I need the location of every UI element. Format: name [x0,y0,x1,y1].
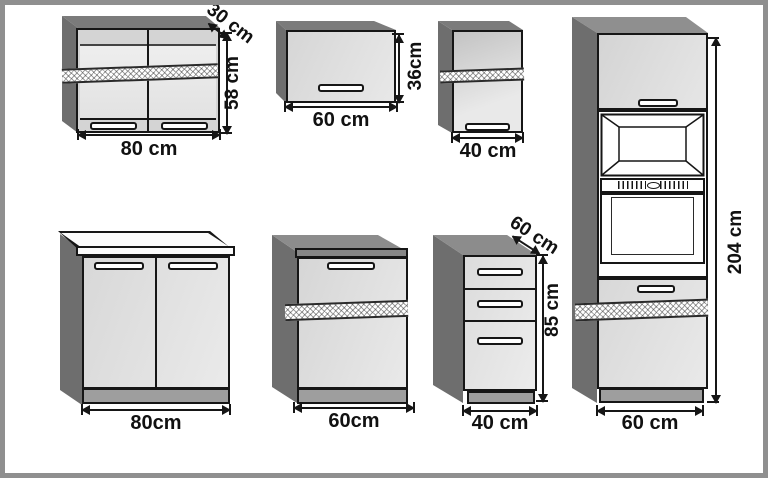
oven-control-panel [600,178,705,193]
drawer-handle [477,300,523,308]
vent-slots [660,181,688,189]
height-dimension-arrow [715,38,717,403]
cabinet-dimension-diagram: 80 cm 58 cm 30 cm 60 cm 36cm 40 cm [0,0,768,478]
width-dimension-label: 40 cm [442,140,534,163]
door-handle [90,122,137,130]
drawer-handle [477,337,523,345]
appliance-zone [597,110,708,278]
dimension-tick [392,33,404,35]
top-panel [438,21,523,30]
door-handle [94,262,144,270]
worktop-edge [76,246,235,256]
plinth [599,388,704,403]
door-handle [465,123,510,131]
side-panel [276,21,286,103]
door-divider [155,258,157,387]
drawer-divider [463,320,537,322]
drawer-divider [463,288,537,290]
top-panel [62,16,220,28]
oven-knob [647,182,660,189]
door-handle [637,285,675,293]
width-dimension-label: 80cm [82,412,230,435]
dimension-tick [220,132,232,134]
height-dimension-arrow [398,35,400,103]
width-dimension-label: 60 cm [285,109,397,132]
dimension-tick [536,400,548,402]
side-panel [433,235,463,403]
drawer-handle [477,268,523,276]
door-handle [161,122,208,130]
flap-door [286,30,396,103]
top-panel [276,21,396,30]
microwave-niche [600,113,705,177]
side-panel [60,234,82,405]
side-panel [572,17,597,403]
dimension-tick [392,101,404,103]
door-handle [318,84,364,92]
cabinet-door [297,257,408,389]
width-dimension-arrow [82,409,230,411]
bottom-door [597,278,708,389]
dimension-tick [536,254,548,256]
plinth [82,388,230,404]
width-dimension-arrow [285,106,397,108]
width-dimension-label: 60 cm [597,412,703,435]
height-dimension-label: 36cm [406,26,426,106]
dimension-tick [707,37,719,39]
vent-slots [618,181,646,189]
width-dimension-label: 80 cm [78,138,220,161]
door-handle [638,99,678,107]
width-dimension-arrow [78,134,220,136]
oven-door [600,193,705,264]
door-handle [168,262,218,270]
dimension-tick [707,401,719,403]
height-dimension-label: 204 cm [726,202,746,282]
door-handle [327,262,375,270]
plinth [467,391,535,404]
width-dimension-label: 60cm [294,410,414,433]
height-dimension-label: 58 cm [223,43,243,123]
width-dimension-label: 40 cm [453,412,547,435]
width-dimension-arrow [294,407,414,409]
plinth [297,388,408,404]
width-dimension-arrow [452,137,523,139]
height-dimension-label: 85 cm [543,270,563,350]
oven-door-inner-frame [611,197,694,255]
